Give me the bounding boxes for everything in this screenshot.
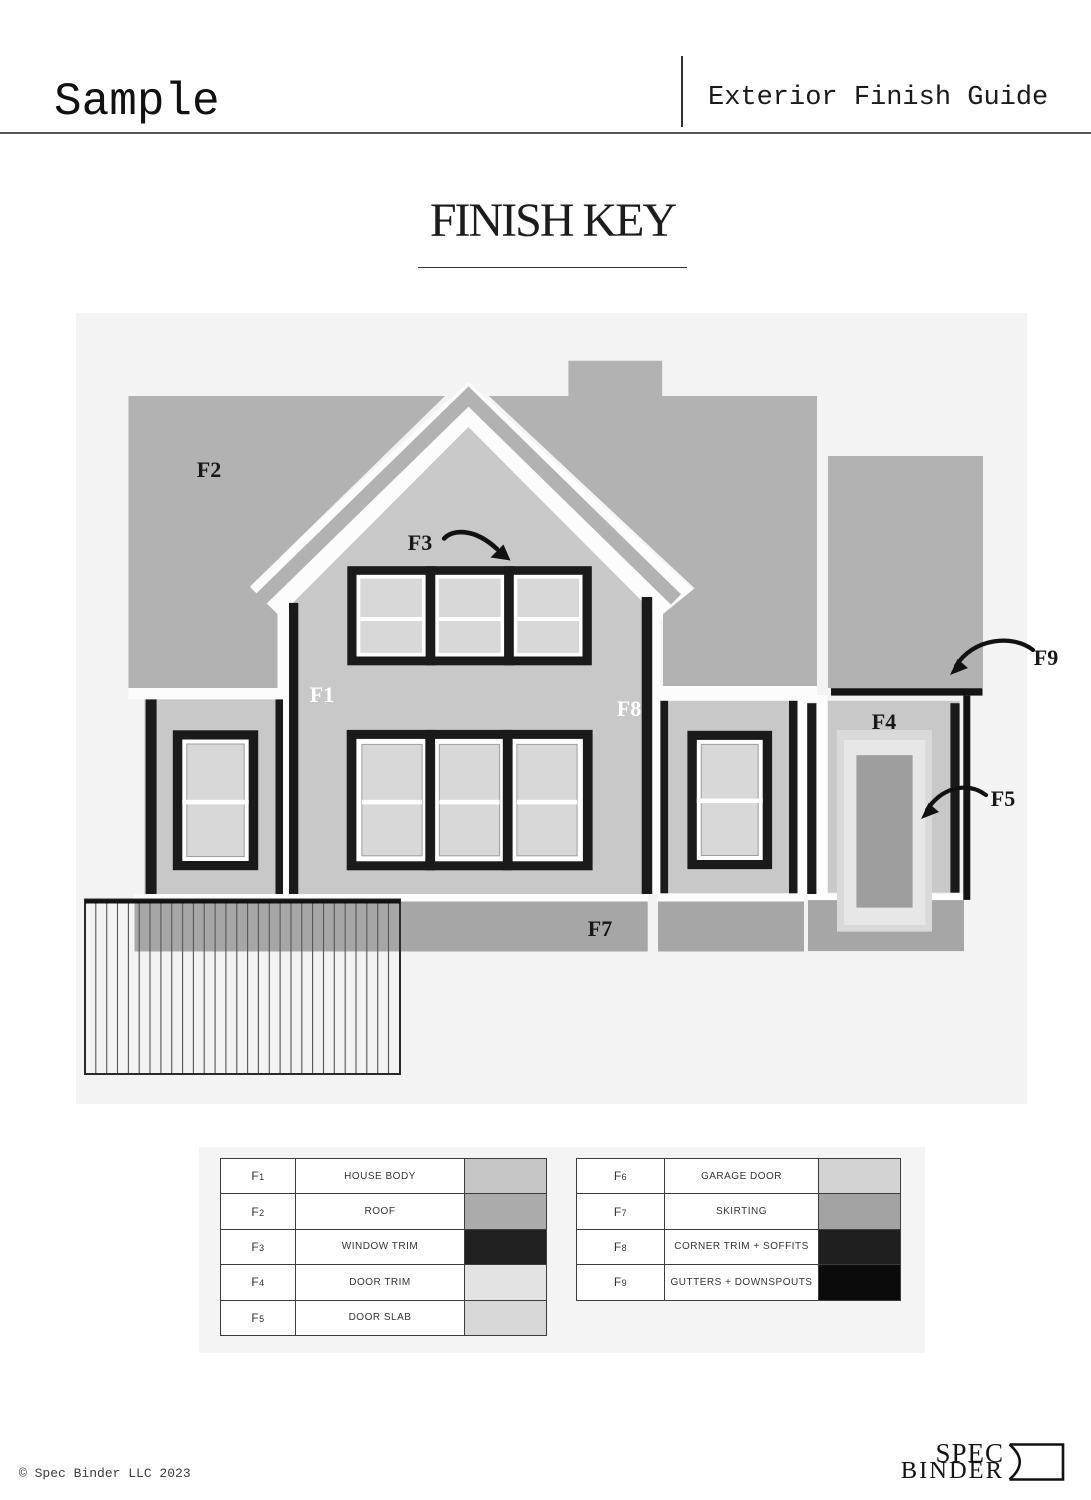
svg-text:F9: F9 <box>1034 645 1058 670</box>
svg-text:F2: F2 <box>197 457 221 482</box>
svg-text:F3: F3 <box>408 530 432 555</box>
svg-text:F7: F7 <box>588 916 612 941</box>
svg-text:F8: F8 <box>617 696 641 721</box>
svg-text:F4: F4 <box>872 709 896 734</box>
svg-text:F1: F1 <box>310 682 334 707</box>
svg-text:F5: F5 <box>991 786 1015 811</box>
